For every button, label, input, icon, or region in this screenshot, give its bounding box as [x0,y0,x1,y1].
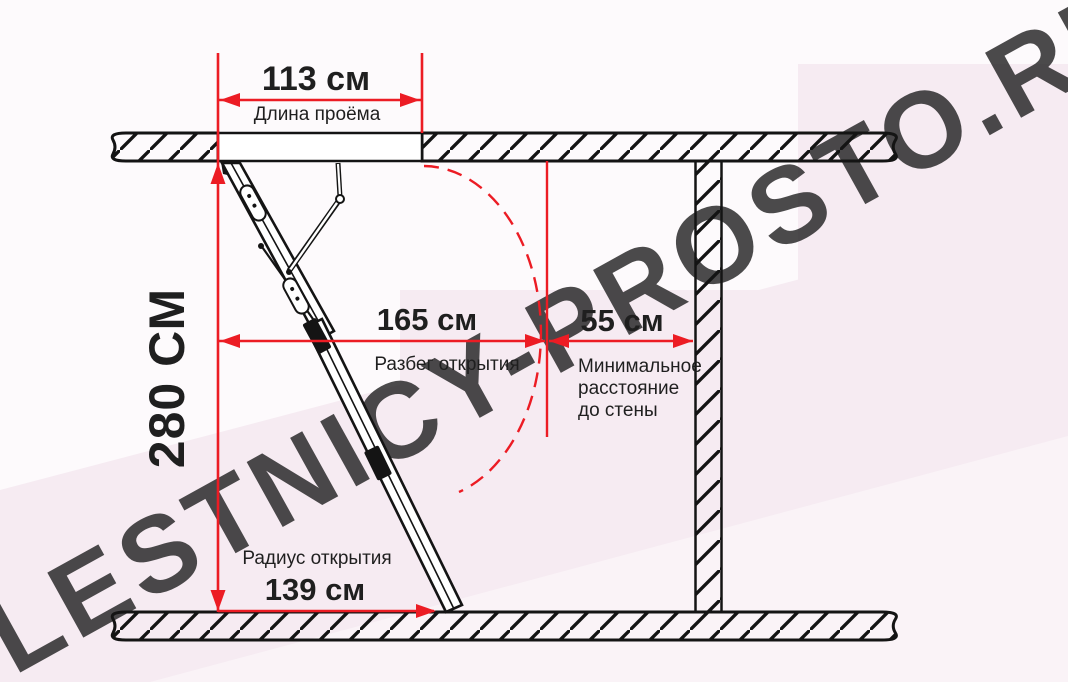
opening-length-value: 113 см [262,60,370,98]
radius-label: Радиус открытия [242,548,391,569]
wall-gap-label-line2: расстояние [578,378,679,399]
radius-value: 139 см [265,572,366,607]
scissor-arm-pivot [258,243,264,249]
wall-gap-value: 55 см [580,303,663,338]
floor [112,612,896,640]
wall [696,161,722,612]
ceiling-left-segment [112,133,218,161]
wall-gap-label-line1: Минимальное [578,356,702,377]
wall-gap-label-line3: до стены [578,400,658,421]
span-label: Разбег открытия [374,354,519,375]
span-value: 165 см [377,302,478,337]
strut-pivot [286,269,292,275]
ceiling-opening-box [218,133,422,161]
rod-joint [336,195,344,203]
attic-ladder-dimension-diagram: LESTNICY-PROSTO.RU [0,0,1068,682]
diagram-canvas: LESTNICY-PROSTO.RU [0,0,1068,682]
height-value: 280 СМ [139,288,195,468]
ceiling [112,133,896,161]
ceiling-right-segment [422,133,896,161]
opening-length-label: Длина проёма [254,104,381,125]
